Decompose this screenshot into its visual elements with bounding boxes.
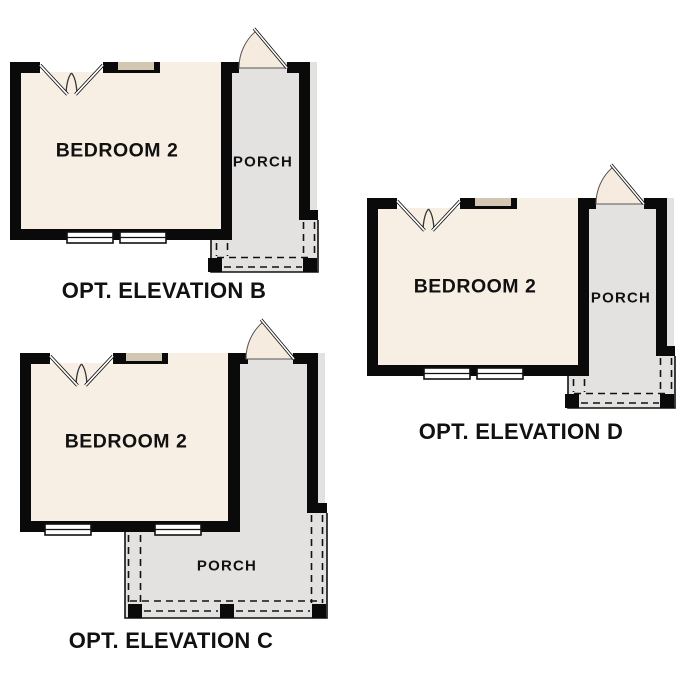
window-opening	[40, 62, 103, 72]
porch-label-c: PORCH	[197, 558, 257, 575]
window-opening	[50, 353, 113, 363]
sill-window	[126, 353, 162, 361]
room-label-bedroom-c: BEDROOM 2	[65, 431, 188, 454]
porch-label-b: PORCH	[233, 154, 293, 171]
floorplan-canvas: BEDROOM 2 PORCH OPT. ELEVATION B BEDROOM…	[0, 0, 687, 687]
room-label-bedroom-b: BEDROOM 2	[56, 140, 179, 163]
roof-edge-strip	[318, 353, 325, 503]
sill-window	[118, 62, 154, 70]
porch-label-d: PORCH	[591, 290, 651, 307]
floorplan-graphics	[0, 0, 687, 687]
plan-elevation-c-graphics	[20, 320, 327, 619]
plan-title-b: OPT. ELEVATION B	[62, 278, 266, 304]
plan-title-c: OPT. ELEVATION C	[69, 628, 273, 654]
roof-edge-strip	[310, 62, 317, 210]
room-label-bedroom-d: BEDROOM 2	[414, 276, 537, 299]
plan-title-d: OPT. ELEVATION D	[419, 419, 623, 445]
